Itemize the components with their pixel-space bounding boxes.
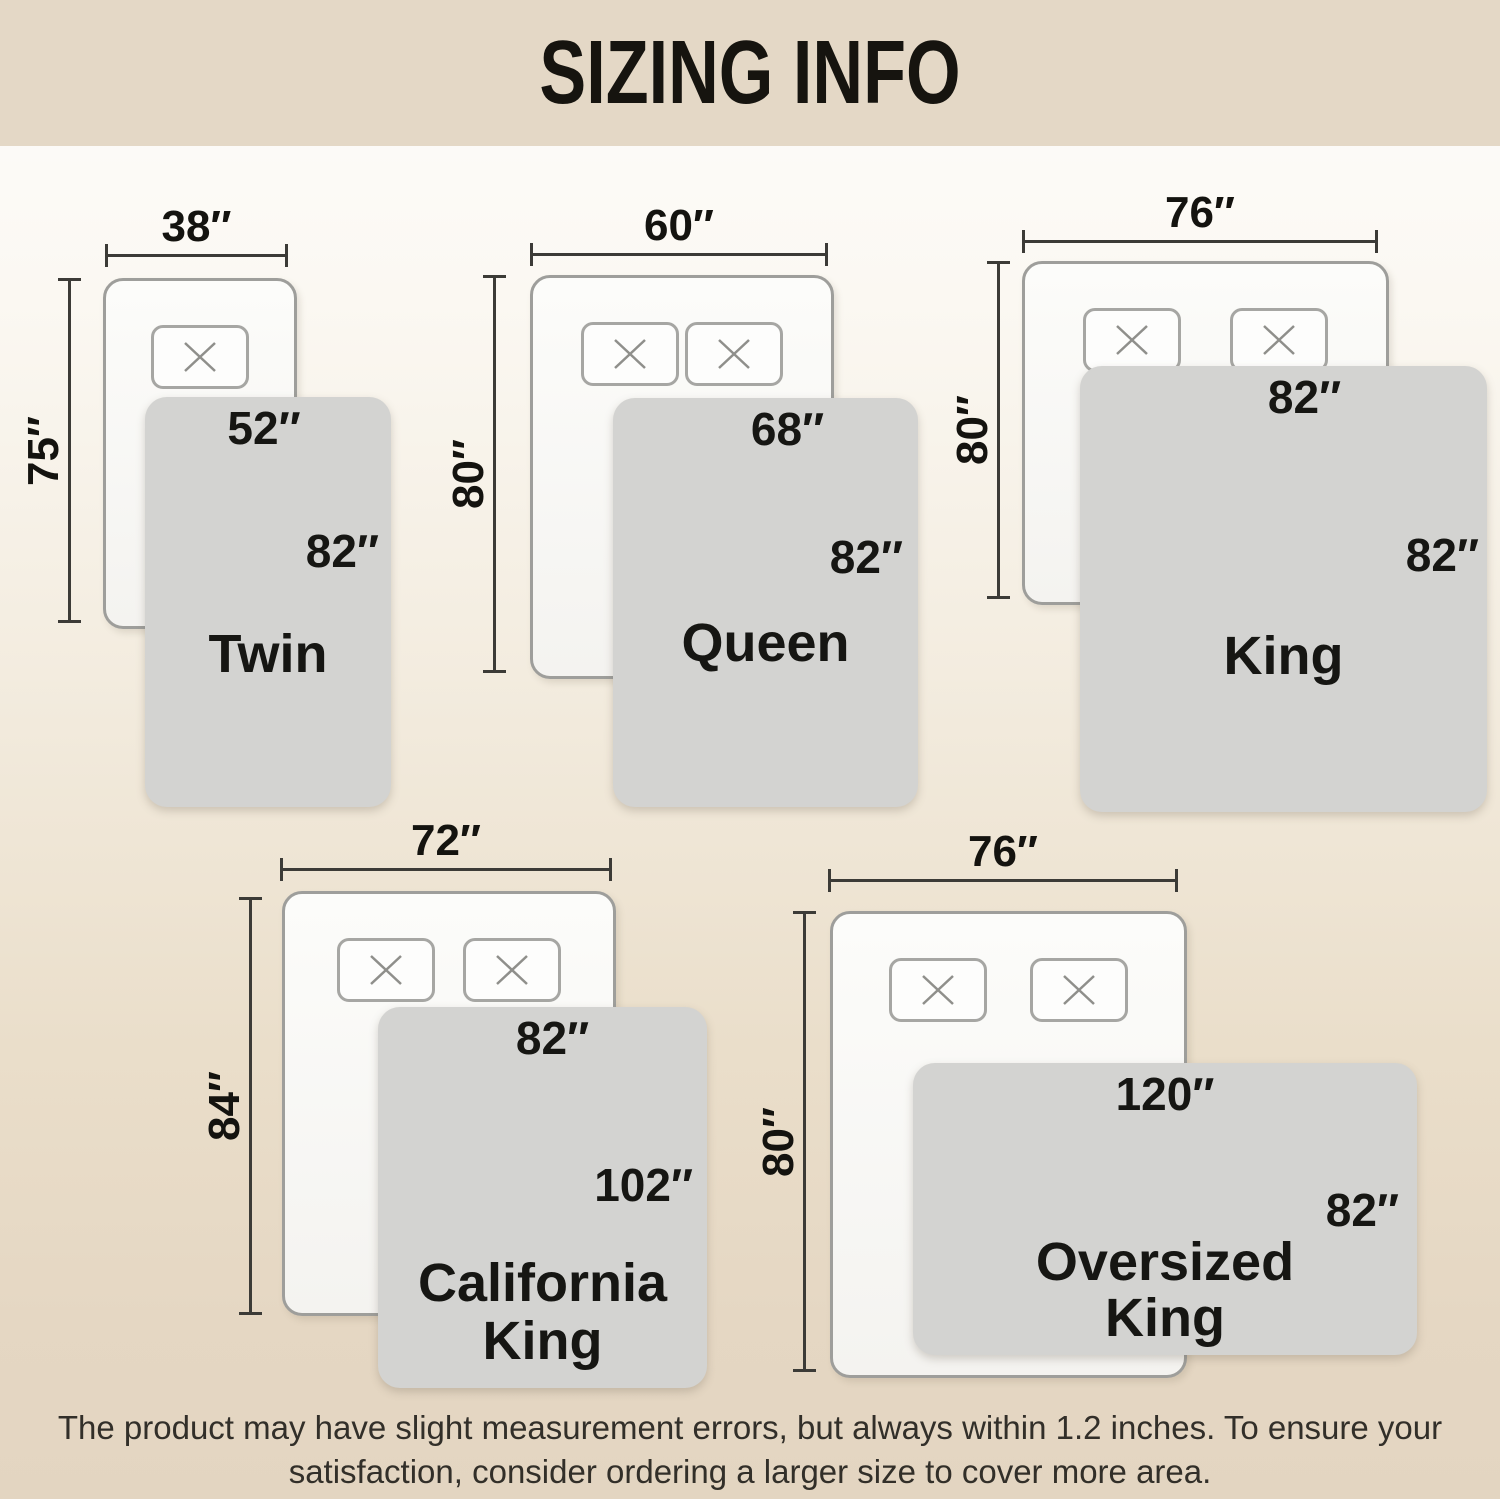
dimension-rule [105, 254, 288, 257]
bed-height-label: 80″ [949, 360, 997, 500]
height-dimension-line: 80″ [803, 911, 806, 1372]
x-mark-icon [358, 951, 414, 989]
blanket-width-label: 120″ [1116, 1071, 1215, 1117]
blanket-width-label: 82″ [1268, 374, 1341, 420]
bed-width-label: 38″ [105, 203, 288, 251]
x-mark-icon [172, 338, 228, 376]
width-dimension-line: 38″ [105, 203, 288, 257]
dimension-rule [1022, 240, 1378, 243]
dimension-rule [530, 253, 828, 256]
blanket-length-label: 82″ [1406, 532, 1479, 578]
size-name-line2: King [483, 1311, 603, 1371]
measurement-notice: The product may have slight measurement … [0, 1406, 1500, 1494]
size-name-label: OversizedKing [913, 1234, 1417, 1346]
x-mark-icon [484, 951, 540, 989]
width-dimension-line: 76″ [1022, 189, 1378, 243]
width-dimension-line: 76″ [828, 828, 1178, 882]
blanket-width-label: 82″ [516, 1015, 589, 1061]
size-name-label: Queen [613, 615, 918, 672]
height-dimension-line: 80″ [997, 261, 1000, 599]
height-dimension-line: 84″ [249, 897, 252, 1315]
bed-height-label: 75″ [20, 381, 68, 521]
blanket-width-label: 52″ [227, 405, 300, 451]
dimension-rule [280, 868, 612, 871]
blanket-width-label: 68″ [751, 406, 824, 452]
width-dimension-line: 60″ [530, 202, 828, 256]
blanket: 82″ 102″ CaliforniaKing [378, 1007, 707, 1388]
blanket-length-label: 82″ [830, 534, 903, 580]
width-dimension-line: 72″ [280, 817, 612, 871]
dimension-rule [828, 879, 1178, 882]
x-mark-icon [1251, 321, 1307, 359]
pillow-icon [1030, 958, 1128, 1022]
dimension-rule [803, 911, 806, 1372]
blanket: 52″ 82″ Twin [145, 397, 391, 807]
pillow-icon [337, 938, 435, 1002]
dimension-rule [249, 897, 252, 1315]
blanket: 120″ 82″ OversizedKing [913, 1063, 1417, 1355]
blanket: 68″ 82″ Queen [613, 398, 918, 807]
dimension-rule [68, 278, 71, 623]
x-mark-icon [1104, 321, 1160, 359]
size-name-label: King [1080, 628, 1487, 685]
dimension-rule [493, 275, 496, 673]
height-dimension-line: 80″ [493, 275, 496, 673]
bed-width-label: 72″ [280, 817, 612, 865]
pillow-icon [581, 322, 679, 386]
header-banner: SIZING INFO [0, 0, 1500, 146]
size-name-line2: King [1105, 1288, 1225, 1348]
bed-width-label: 76″ [828, 828, 1178, 876]
blanket-length-label: 82″ [306, 528, 379, 574]
bed-height-label: 80″ [445, 404, 493, 544]
x-mark-icon [1051, 971, 1107, 1009]
blanket-length-label: 82″ [1326, 1187, 1399, 1233]
page-title: SIZING INFO [539, 28, 960, 118]
size-name-line1: California [418, 1253, 667, 1313]
bed-width-label: 60″ [530, 202, 828, 250]
dimension-rule [997, 261, 1000, 599]
height-dimension-line: 75″ [68, 278, 71, 623]
x-mark-icon [910, 971, 966, 1009]
size-name-line1: Oversized [1036, 1232, 1294, 1292]
pillow-icon [463, 938, 561, 1002]
blanket-length-label: 102″ [594, 1162, 693, 1208]
notice-line-1: The product may have slight measurement … [0, 1406, 1500, 1450]
pillow-icon [889, 958, 987, 1022]
pillow-icon [685, 322, 783, 386]
size-name-label: CaliforniaKing [378, 1254, 707, 1370]
sizing-infographic: SIZING INFO 38″ 75″ 52″ 82″ Twin 60″ [0, 0, 1500, 1499]
size-name-label: Twin [145, 626, 391, 683]
notice-line-2: satisfaction, consider ordering a larger… [0, 1450, 1500, 1494]
bed-height-label: 84″ [201, 1036, 249, 1176]
x-mark-icon [706, 335, 762, 373]
pillow-icon [151, 325, 249, 389]
bed-width-label: 76″ [1022, 189, 1378, 237]
bed-height-label: 80″ [755, 1072, 803, 1212]
blanket: 82″ 82″ King [1080, 366, 1487, 812]
pillow-icon [1083, 308, 1181, 372]
x-mark-icon [602, 335, 658, 373]
pillow-icon [1230, 308, 1328, 372]
